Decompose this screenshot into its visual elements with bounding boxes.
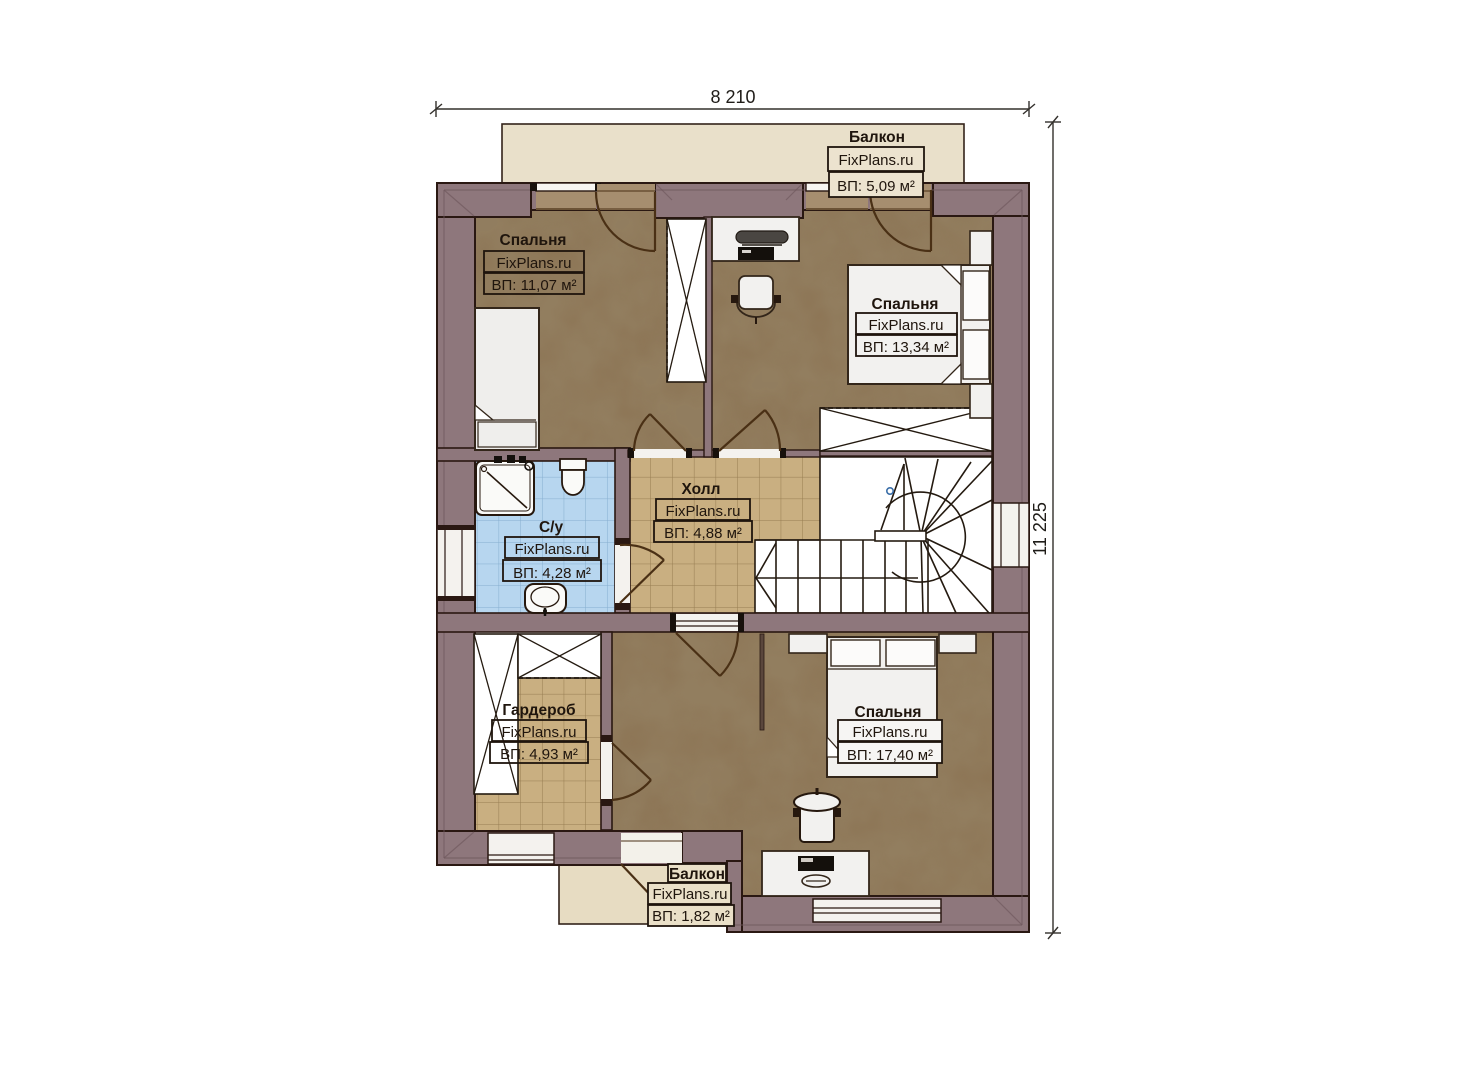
svg-text:11 225: 11 225 (1030, 502, 1050, 556)
svg-text:FixPlans.ru: FixPlans.ru (868, 317, 943, 334)
svg-text:ВП: 17,40 м²: ВП: 17,40 м² (847, 747, 933, 764)
svg-text:ВП: 4,88 м²: ВП: 4,88 м² (664, 525, 742, 542)
svg-text:FixPlans.ru: FixPlans.ru (852, 724, 927, 741)
svg-text:ВП: 13,34 м²: ВП: 13,34 м² (863, 339, 949, 356)
svg-text:С/у: С/у (539, 519, 564, 536)
svg-text:FixPlans.ru: FixPlans.ru (665, 503, 740, 520)
svg-text:Спальня: Спальня (500, 232, 567, 249)
svg-text:FixPlans.ru: FixPlans.ru (652, 886, 727, 903)
svg-text:ВП: 4,93 м²: ВП: 4,93 м² (500, 746, 578, 763)
svg-text:ВП: 4,28 м²: ВП: 4,28 м² (513, 565, 591, 582)
svg-text:Холл: Холл (682, 481, 721, 498)
svg-text:Гардероб: Гардероб (502, 702, 575, 719)
svg-text:ВП: 11,07 м²: ВП: 11,07 м² (491, 277, 576, 294)
svg-text:FixPlans.ru: FixPlans.ru (501, 724, 576, 741)
svg-text:Балкон: Балкон (849, 129, 905, 146)
svg-text:Балкон: Балкон (669, 866, 725, 883)
svg-text:ВП: 5,09 м²: ВП: 5,09 м² (837, 178, 915, 195)
svg-text:FixPlans.ru: FixPlans.ru (514, 541, 589, 558)
svg-text:ВП: 1,82 м²: ВП: 1,82 м² (652, 908, 730, 925)
svg-text:FixPlans.ru: FixPlans.ru (496, 255, 571, 272)
svg-text:Спальня: Спальня (872, 296, 939, 313)
svg-text:8 210: 8 210 (710, 87, 755, 107)
svg-text:FixPlans.ru: FixPlans.ru (838, 152, 913, 169)
svg-text:Спальня: Спальня (855, 704, 922, 721)
